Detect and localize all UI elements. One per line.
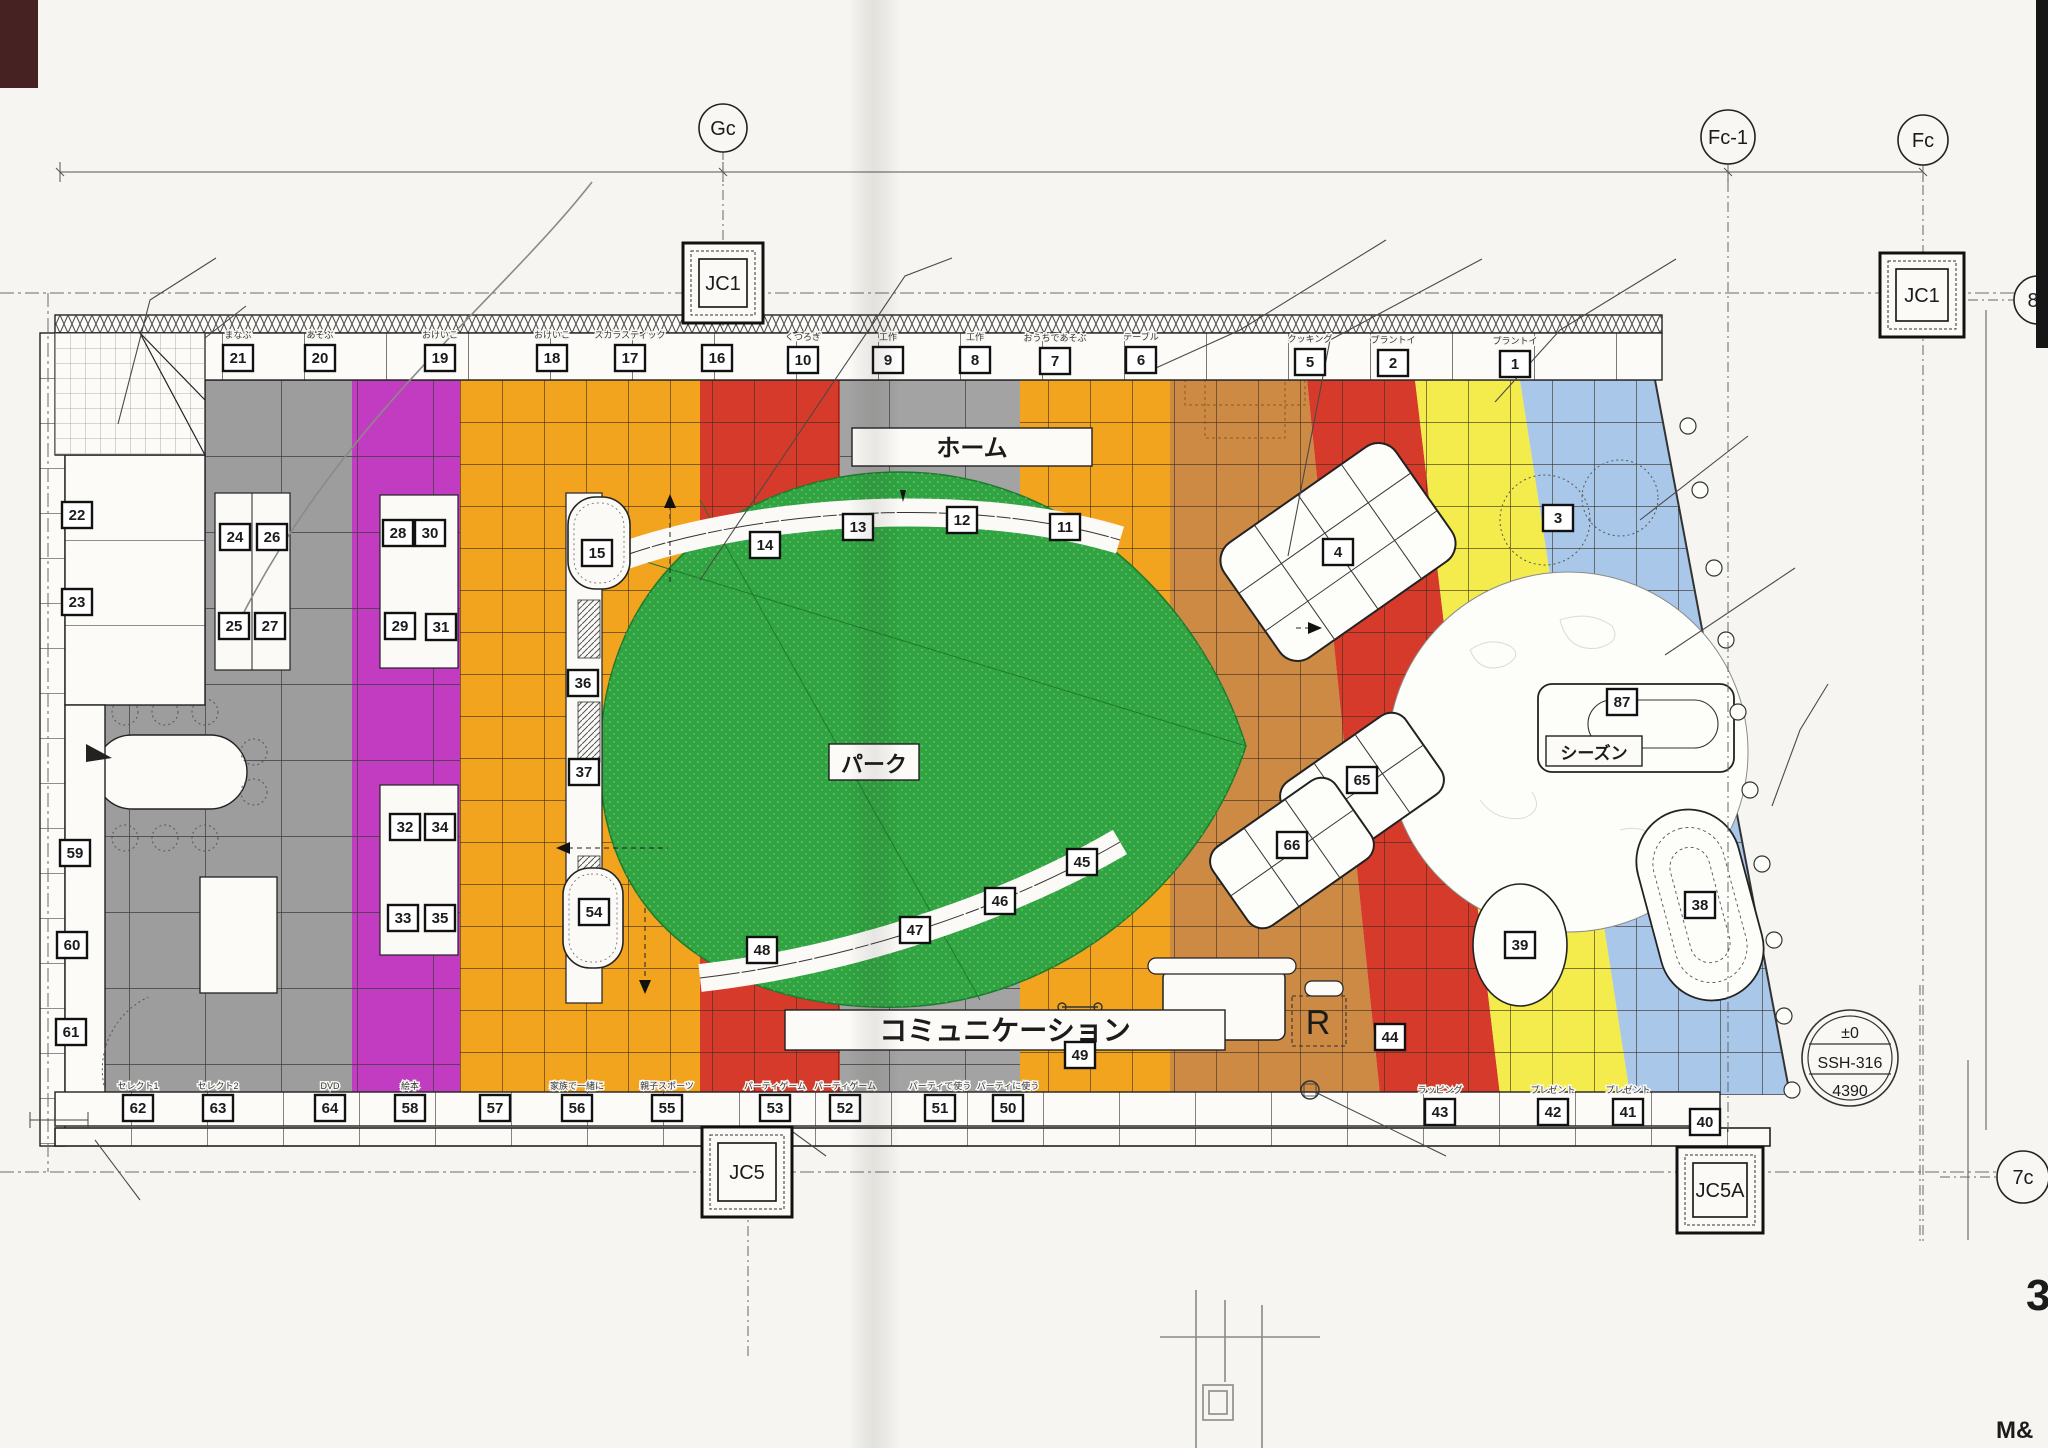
svg-text:あそぶ: あそぶ — [306, 330, 333, 340]
ssh-shutter-symbol: ±0 SSH-316 4390 — [1802, 1010, 1898, 1106]
numbered-marker: 48 — [747, 937, 777, 963]
numbered-cell: 18 おけいこ — [534, 330, 570, 371]
numbered-marker: 37 — [569, 759, 599, 785]
numbered-cell: 57 — [480, 1095, 510, 1121]
svg-text:くつろぎ: くつろぎ — [785, 331, 821, 342]
svg-text:おうちであそぶ: おうちであそぶ — [1024, 333, 1087, 343]
svg-text:42: 42 — [1545, 1104, 1562, 1121]
svg-text:53: 53 — [767, 1100, 784, 1117]
svg-text:34: 34 — [432, 819, 449, 836]
numbered-marker: 40 — [1690, 1109, 1720, 1135]
svg-text:61: 61 — [63, 1024, 80, 1041]
svg-text:1: 1 — [1511, 356, 1519, 373]
svg-text:35: 35 — [432, 910, 449, 927]
svg-text:49: 49 — [1072, 1047, 1089, 1064]
svg-text:57: 57 — [487, 1100, 504, 1117]
svg-text:Fc-1: Fc-1 — [1708, 127, 1748, 149]
numbered-marker: 61 — [56, 1019, 86, 1045]
page-number: 3 — [2026, 1271, 2048, 1320]
svg-text:3: 3 — [1554, 510, 1562, 527]
floor-plan-drawing: R — [0, 0, 2048, 1448]
svg-text:プレゼント: プレゼント — [1605, 1084, 1650, 1095]
svg-text:11: 11 — [1057, 519, 1073, 536]
numbered-cell: 16 — [702, 345, 732, 371]
scan-edge — [2036, 0, 2048, 348]
fold-shadow — [848, 0, 900, 1448]
svg-text:23: 23 — [69, 594, 86, 611]
svg-text:44: 44 — [1382, 1029, 1399, 1046]
svg-text:2: 2 — [1389, 355, 1397, 372]
numbered-marker: 28 — [383, 520, 413, 546]
register-r: R — [1306, 1004, 1331, 1042]
svg-text:51: 51 — [932, 1100, 949, 1117]
grid-bubble: Fc-1 — [1701, 110, 1755, 164]
numbered-cell: 5 クッキング — [1288, 333, 1333, 375]
numbered-marker: 45 — [1067, 849, 1097, 875]
svg-text:29: 29 — [392, 618, 409, 635]
svg-text:クッキング: クッキング — [1288, 333, 1333, 344]
svg-text:59: 59 — [67, 845, 84, 862]
numbered-marker: 47 — [900, 917, 930, 943]
numbered-marker: 11 — [1050, 514, 1080, 540]
numbered-marker: 24 — [220, 524, 250, 550]
svg-text:DVD: DVD — [320, 1081, 340, 1091]
numbered-marker: 14 — [750, 532, 780, 558]
numbered-marker: 49 — [1065, 1042, 1095, 1068]
numbered-marker: 29 — [385, 613, 415, 639]
numbered-cell: 20 あそぶ — [305, 330, 335, 371]
svg-text:26: 26 — [264, 529, 281, 546]
numbered-cell: 42 プレゼント — [1530, 1084, 1575, 1125]
svg-text:28: 28 — [390, 525, 407, 542]
svg-text:家族で一緒に: 家族で一緒に — [550, 1080, 604, 1091]
svg-text:14: 14 — [757, 537, 774, 554]
numbered-marker: 59 — [60, 840, 90, 866]
svg-text:絵本: 絵本 — [401, 1080, 419, 1091]
grid-bubble: Gc — [699, 104, 747, 152]
numbered-marker: 22 — [62, 502, 92, 528]
svg-text:Gc: Gc — [710, 118, 736, 140]
svg-text:47: 47 — [907, 922, 924, 939]
table-1500x800 — [95, 735, 247, 809]
svg-text:工作: 工作 — [966, 331, 984, 342]
svg-text:10: 10 — [795, 352, 812, 369]
numbered-cell: 6 テーブル — [1123, 331, 1158, 373]
numbered-cell: 63 セレクト2 — [197, 1081, 238, 1121]
numbered-cell: 62 セレクト1 — [117, 1081, 158, 1121]
svg-text:66: 66 — [1284, 837, 1301, 854]
junction-box: JC1 — [1880, 253, 1964, 337]
svg-text:7: 7 — [1051, 353, 1059, 370]
svg-text:39: 39 — [1512, 937, 1529, 954]
svg-text:パーティに使う: パーティに使う — [977, 1080, 1039, 1091]
ssh-model: SSH-316 — [1818, 1055, 1883, 1072]
svg-text:JC1: JC1 — [705, 273, 741, 295]
numbered-cell: 2 プラントイ — [1370, 335, 1415, 376]
numbered-marker: 27 — [255, 613, 285, 639]
numbered-marker: 34 — [425, 814, 455, 840]
numbered-marker: 4 — [1323, 539, 1353, 565]
junction-box: JC1 — [683, 243, 763, 323]
svg-text:31: 31 — [433, 619, 450, 636]
junction-box: JC5A — [1677, 1147, 1763, 1233]
svg-text:55: 55 — [659, 1100, 676, 1117]
svg-text:18: 18 — [544, 350, 561, 367]
svg-text:おけいこ: おけいこ — [534, 330, 570, 340]
svg-text:38: 38 — [1692, 897, 1709, 914]
svg-text:21: 21 — [230, 350, 247, 367]
svg-text:45: 45 — [1074, 854, 1091, 871]
numbered-marker: 26 — [257, 524, 287, 550]
numbered-marker: 15 — [582, 540, 612, 566]
scan-corner — [0, 0, 38, 88]
svg-text:40: 40 — [1697, 1114, 1714, 1131]
numbered-marker: 65 — [1347, 767, 1377, 793]
numbered-cell: 21 まなぶ — [223, 330, 253, 371]
svg-text:60: 60 — [64, 937, 81, 954]
table-1200x800 — [200, 877, 277, 993]
svg-text:50: 50 — [1000, 1100, 1017, 1117]
numbered-marker: 31 — [426, 614, 456, 640]
svg-text:16: 16 — [709, 350, 726, 367]
svg-text:4: 4 — [1334, 544, 1343, 561]
svg-text:58: 58 — [402, 1100, 419, 1117]
numbered-marker: 87 — [1607, 689, 1637, 715]
numbered-cell: 43 ラッピング — [1417, 1084, 1462, 1125]
numbered-marker: 54 — [579, 899, 609, 925]
svg-text:12: 12 — [954, 512, 971, 529]
floor-plan-sheet: R — [0, 0, 2048, 1448]
svg-text:Fc: Fc — [1912, 130, 1934, 152]
zone-label: シーズン — [1546, 736, 1642, 766]
svg-text:親子スポーツ: 親子スポーツ — [640, 1080, 694, 1091]
numbered-marker: 33 — [388, 905, 418, 931]
sheet-mark: M& — [1996, 1417, 2033, 1444]
numbered-marker: 32 — [390, 814, 420, 840]
pencil-sketch — [1160, 1290, 1320, 1448]
numbered-marker: 30 — [415, 520, 445, 546]
svg-text:シーズン: シーズン — [1560, 743, 1627, 763]
svg-text:46: 46 — [992, 893, 1009, 910]
svg-text:17: 17 — [622, 350, 639, 367]
svg-text:ホーム: ホーム — [936, 435, 1007, 462]
svg-text:32: 32 — [397, 819, 414, 836]
numbered-cell: 19 おけいこ — [422, 330, 458, 371]
svg-text:41: 41 — [1620, 1104, 1637, 1121]
numbered-marker: 46 — [985, 888, 1015, 914]
svg-text:36: 36 — [575, 675, 592, 692]
svg-text:プレゼント: プレゼント — [1530, 1084, 1575, 1095]
svg-text:64: 64 — [322, 1100, 339, 1117]
svg-text:まなぶ: まなぶ — [224, 330, 251, 340]
svg-text:スカラスティック: スカラスティック — [594, 330, 665, 340]
svg-text:20: 20 — [312, 350, 329, 367]
svg-text:54: 54 — [586, 904, 603, 921]
grid-bubble: 7c — [1997, 1151, 2048, 1203]
svg-text:テーブル: テーブル — [1123, 331, 1158, 342]
svg-text:87: 87 — [1614, 694, 1631, 711]
svg-text:5: 5 — [1306, 354, 1314, 371]
numbered-cell: 1 プラントイ — [1492, 336, 1537, 377]
svg-text:JC5A: JC5A — [1696, 1180, 1746, 1202]
grid-bubble: Fc — [1898, 115, 1948, 165]
svg-text:56: 56 — [569, 1100, 586, 1117]
numbered-marker: 23 — [62, 589, 92, 615]
numbered-cell: 41 プレゼント — [1605, 1084, 1650, 1125]
svg-text:プラントイ: プラントイ — [1370, 335, 1415, 345]
svg-text:ラッピング: ラッピング — [1417, 1084, 1462, 1095]
svg-text:セレクト2: セレクト2 — [197, 1081, 238, 1091]
numbered-marker: 3 — [1543, 505, 1573, 531]
numbered-marker: 25 — [219, 613, 249, 639]
junction-box: JC5 — [702, 1127, 792, 1217]
svg-text:セレクト1: セレクト1 — [117, 1081, 158, 1091]
svg-text:パーティで使う: パーティで使う — [909, 1080, 971, 1091]
numbered-cell: 10 くつろぎ — [785, 331, 821, 373]
svg-text:37: 37 — [576, 764, 593, 781]
svg-text:19: 19 — [432, 350, 449, 367]
svg-text:8: 8 — [971, 352, 979, 369]
numbered-marker: 39 — [1505, 932, 1535, 958]
svg-text:65: 65 — [1354, 772, 1371, 789]
svg-text:7c: 7c — [2012, 1167, 2033, 1189]
svg-text:6: 6 — [1137, 352, 1145, 369]
numbered-marker: 36 — [568, 670, 598, 696]
numbered-marker: 44 — [1375, 1024, 1405, 1050]
numbered-marker: 66 — [1277, 832, 1307, 858]
svg-text:27: 27 — [262, 618, 279, 635]
ssh-width: 4390 — [1832, 1083, 1868, 1100]
svg-text:33: 33 — [395, 910, 412, 927]
svg-text:JC5: JC5 — [729, 1162, 765, 1184]
svg-text:22: 22 — [69, 507, 86, 524]
svg-text:おけいこ: おけいこ — [422, 330, 458, 340]
numbered-marker: 38 — [1685, 892, 1715, 918]
svg-text:パーティゲーム: パーティゲーム — [744, 1080, 806, 1091]
numbered-marker: 60 — [57, 932, 87, 958]
svg-text:63: 63 — [210, 1100, 227, 1117]
ssh-level: ±0 — [1841, 1025, 1859, 1042]
numbered-marker: 35 — [425, 905, 455, 931]
svg-text:48: 48 — [754, 942, 771, 959]
svg-text:24: 24 — [227, 529, 244, 546]
svg-text:62: 62 — [130, 1100, 147, 1117]
svg-text:プラントイ: プラントイ — [1492, 336, 1537, 346]
svg-text:JC1: JC1 — [1904, 285, 1940, 307]
svg-text:43: 43 — [1432, 1104, 1449, 1121]
numbered-marker: 12 — [947, 507, 977, 533]
svg-text:30: 30 — [422, 525, 439, 542]
svg-text:15: 15 — [589, 545, 606, 562]
svg-text:25: 25 — [226, 618, 243, 635]
